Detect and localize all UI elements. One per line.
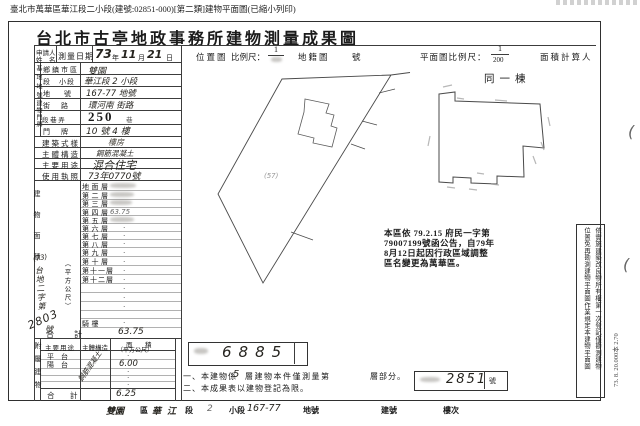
floor-value: · xyxy=(123,249,125,257)
annex-total-label: 合 計 xyxy=(47,390,82,401)
divider xyxy=(181,45,182,401)
survey-date-label: 測量日期 xyxy=(58,51,94,62)
row-label: 主要用途 xyxy=(42,160,80,171)
area-calculator-label: 面積計算人 xyxy=(540,51,593,63)
row-value: 樓房 xyxy=(108,137,124,148)
building-number: 2851 xyxy=(446,372,487,387)
bottom-subsection-value: 2 xyxy=(207,404,213,414)
row-label: 使用執照 xyxy=(42,171,80,182)
bottom-section-value: 華江 xyxy=(152,404,182,417)
bottom-lot-value: 167-77 xyxy=(247,403,281,414)
location-map-label: 位置圖 xyxy=(196,51,228,63)
scanned-survey-document: 臺北市萬華區華江段二小段(建號:02851-000)[第二類]建物平面圖(已縮小… xyxy=(0,0,640,426)
annex-section-label: 附屬建物 xyxy=(33,342,43,400)
floor-value: · xyxy=(123,319,125,327)
bottom-district-label: 區 xyxy=(140,405,148,416)
district-note-line: 區名變更為萬華區。 xyxy=(384,257,465,269)
note-line1: 一、本建物係 xyxy=(183,371,237,382)
location-scale-numerator: 1 xyxy=(274,45,278,54)
floor-value: · xyxy=(123,232,125,240)
plan-scale-denominator: 200 xyxy=(493,56,504,64)
cropped-text-fragment xyxy=(556,0,640,5)
bottom-district-value: 雙園 xyxy=(106,404,124,417)
fraction-bar xyxy=(491,54,509,55)
note-line2: 二、本成果表以建物登記為限。 xyxy=(183,383,309,394)
row-label: 鄉鎮市區 xyxy=(43,65,79,75)
same-building-label: 同一棟 xyxy=(484,71,531,86)
note-line1-tail: 層部分。 xyxy=(370,371,406,382)
row-line xyxy=(40,375,175,376)
row-label: 地 號 xyxy=(43,89,71,99)
survey-date-year: 73 xyxy=(95,47,112,61)
faint-scribble xyxy=(420,377,440,382)
note-column-1: 依實施建築改良物所有權第一次登記僅勘測建物 xyxy=(592,227,603,395)
area-unit-label: （平方公尺） xyxy=(61,260,71,320)
divider xyxy=(34,45,596,46)
floor-value: 63.75 xyxy=(110,208,130,216)
survey-date-day: 21 xyxy=(147,48,162,61)
top-caption: 臺北市萬華區華江段二小段(建號:02851-000)[第二類]建物平面圖(已縮小… xyxy=(10,3,296,15)
lane-unit: 巷 xyxy=(126,114,133,124)
row-label: 主體構造 xyxy=(42,149,80,160)
floor-value: · xyxy=(123,224,125,232)
divider xyxy=(294,342,295,364)
plan-scale-label: 平面圖比例尺： xyxy=(420,51,487,63)
year-unit: 年 xyxy=(112,53,119,63)
month-unit: 月 xyxy=(138,53,145,63)
floor-label: 騎樓 xyxy=(82,319,101,329)
filler-dot: · xyxy=(123,285,125,293)
bottom-section-label: 段 xyxy=(185,405,193,416)
note-line1-hand-floors: 5 xyxy=(233,369,239,380)
lane-number-stamp: 250 xyxy=(88,109,114,125)
street-label: 街 路 xyxy=(43,101,70,111)
divider xyxy=(40,388,175,389)
annex-row-value: · xyxy=(127,381,129,389)
annex-total-value: 6.25 xyxy=(116,389,136,399)
file-stamp-suffix: 號 xyxy=(45,324,53,335)
faint-label xyxy=(194,348,208,354)
door-label: 門 牌 xyxy=(43,127,70,137)
filler-dot: · xyxy=(123,303,125,311)
smudged-value xyxy=(110,217,134,222)
margin-paren: ( xyxy=(623,255,629,274)
cadastral-map-label: 地籍圖 xyxy=(298,51,330,63)
area-total-value: 63.75 xyxy=(118,327,144,337)
bottom-floor-label: 樓次 xyxy=(443,405,459,416)
row-line xyxy=(80,301,181,302)
row-line xyxy=(80,310,181,311)
row-value: 73年0770號 xyxy=(88,169,140,182)
survey-date-month: 11 xyxy=(121,48,136,61)
row-label: 建築式樣 xyxy=(42,138,80,149)
annex-row-label: 陽 台 xyxy=(47,360,68,370)
bottom-lot-label: 地號 xyxy=(303,405,319,416)
divider xyxy=(175,338,176,401)
parcel-label: (57) xyxy=(264,172,278,180)
faint-denominator xyxy=(271,57,282,62)
row-line xyxy=(40,381,175,382)
divider xyxy=(110,338,111,401)
plan-scale-numerator: 1 xyxy=(498,44,502,53)
floor-value: · xyxy=(123,276,125,284)
note-line1-cont: 層建物本件僅測量第 xyxy=(245,371,331,382)
scale-label: 比例尺： xyxy=(231,51,265,63)
smudged-value xyxy=(110,183,136,188)
row-label: 段 小段 xyxy=(43,77,75,87)
floor-label: 第十二層 xyxy=(82,275,114,285)
floor-value: · xyxy=(123,267,125,275)
bottom-building-no-label: 建號 xyxy=(381,405,397,416)
day-unit: 日 xyxy=(166,53,173,63)
building-number-unit: 號 xyxy=(489,376,496,386)
print-code: 73. 8. 20.000本 2.70 xyxy=(610,315,620,405)
margin-paren: ( xyxy=(628,122,634,141)
bottom-subsection-label: 小段 xyxy=(229,405,245,416)
filler-dot: · xyxy=(123,294,125,302)
right-margin-note-box: 依實施建築改良物所有權第一次登記僅勘測建物 位置免再勘測建物平面圖作業規定本建物… xyxy=(576,224,605,398)
smudged-value xyxy=(110,192,134,197)
lane-label: 段 巷 弄 xyxy=(42,114,65,124)
door-value: 10 號 4 樓 xyxy=(86,124,130,137)
divider xyxy=(56,45,57,62)
fraction-bar xyxy=(268,55,284,56)
row-value: 華江段 2 小段 xyxy=(84,75,137,87)
annex-area-header-unit: （平方公尺） xyxy=(117,345,153,354)
row-value: 167-77 地號 xyxy=(86,87,136,99)
annex-use-header: 主要用途 xyxy=(45,342,75,352)
divider xyxy=(34,62,181,63)
smudged-value xyxy=(110,200,132,205)
floor-value: · xyxy=(123,258,125,266)
row-line xyxy=(80,292,181,293)
floor-value: · xyxy=(123,240,125,248)
result-number: 6885 xyxy=(222,343,288,361)
applicant-label: 姓 名 xyxy=(36,54,56,64)
cadastral-no-label: 號 xyxy=(352,51,361,63)
note-column-2: 位置免再勘測建物平面圖作業規定本建物平面圖 xyxy=(581,227,592,395)
